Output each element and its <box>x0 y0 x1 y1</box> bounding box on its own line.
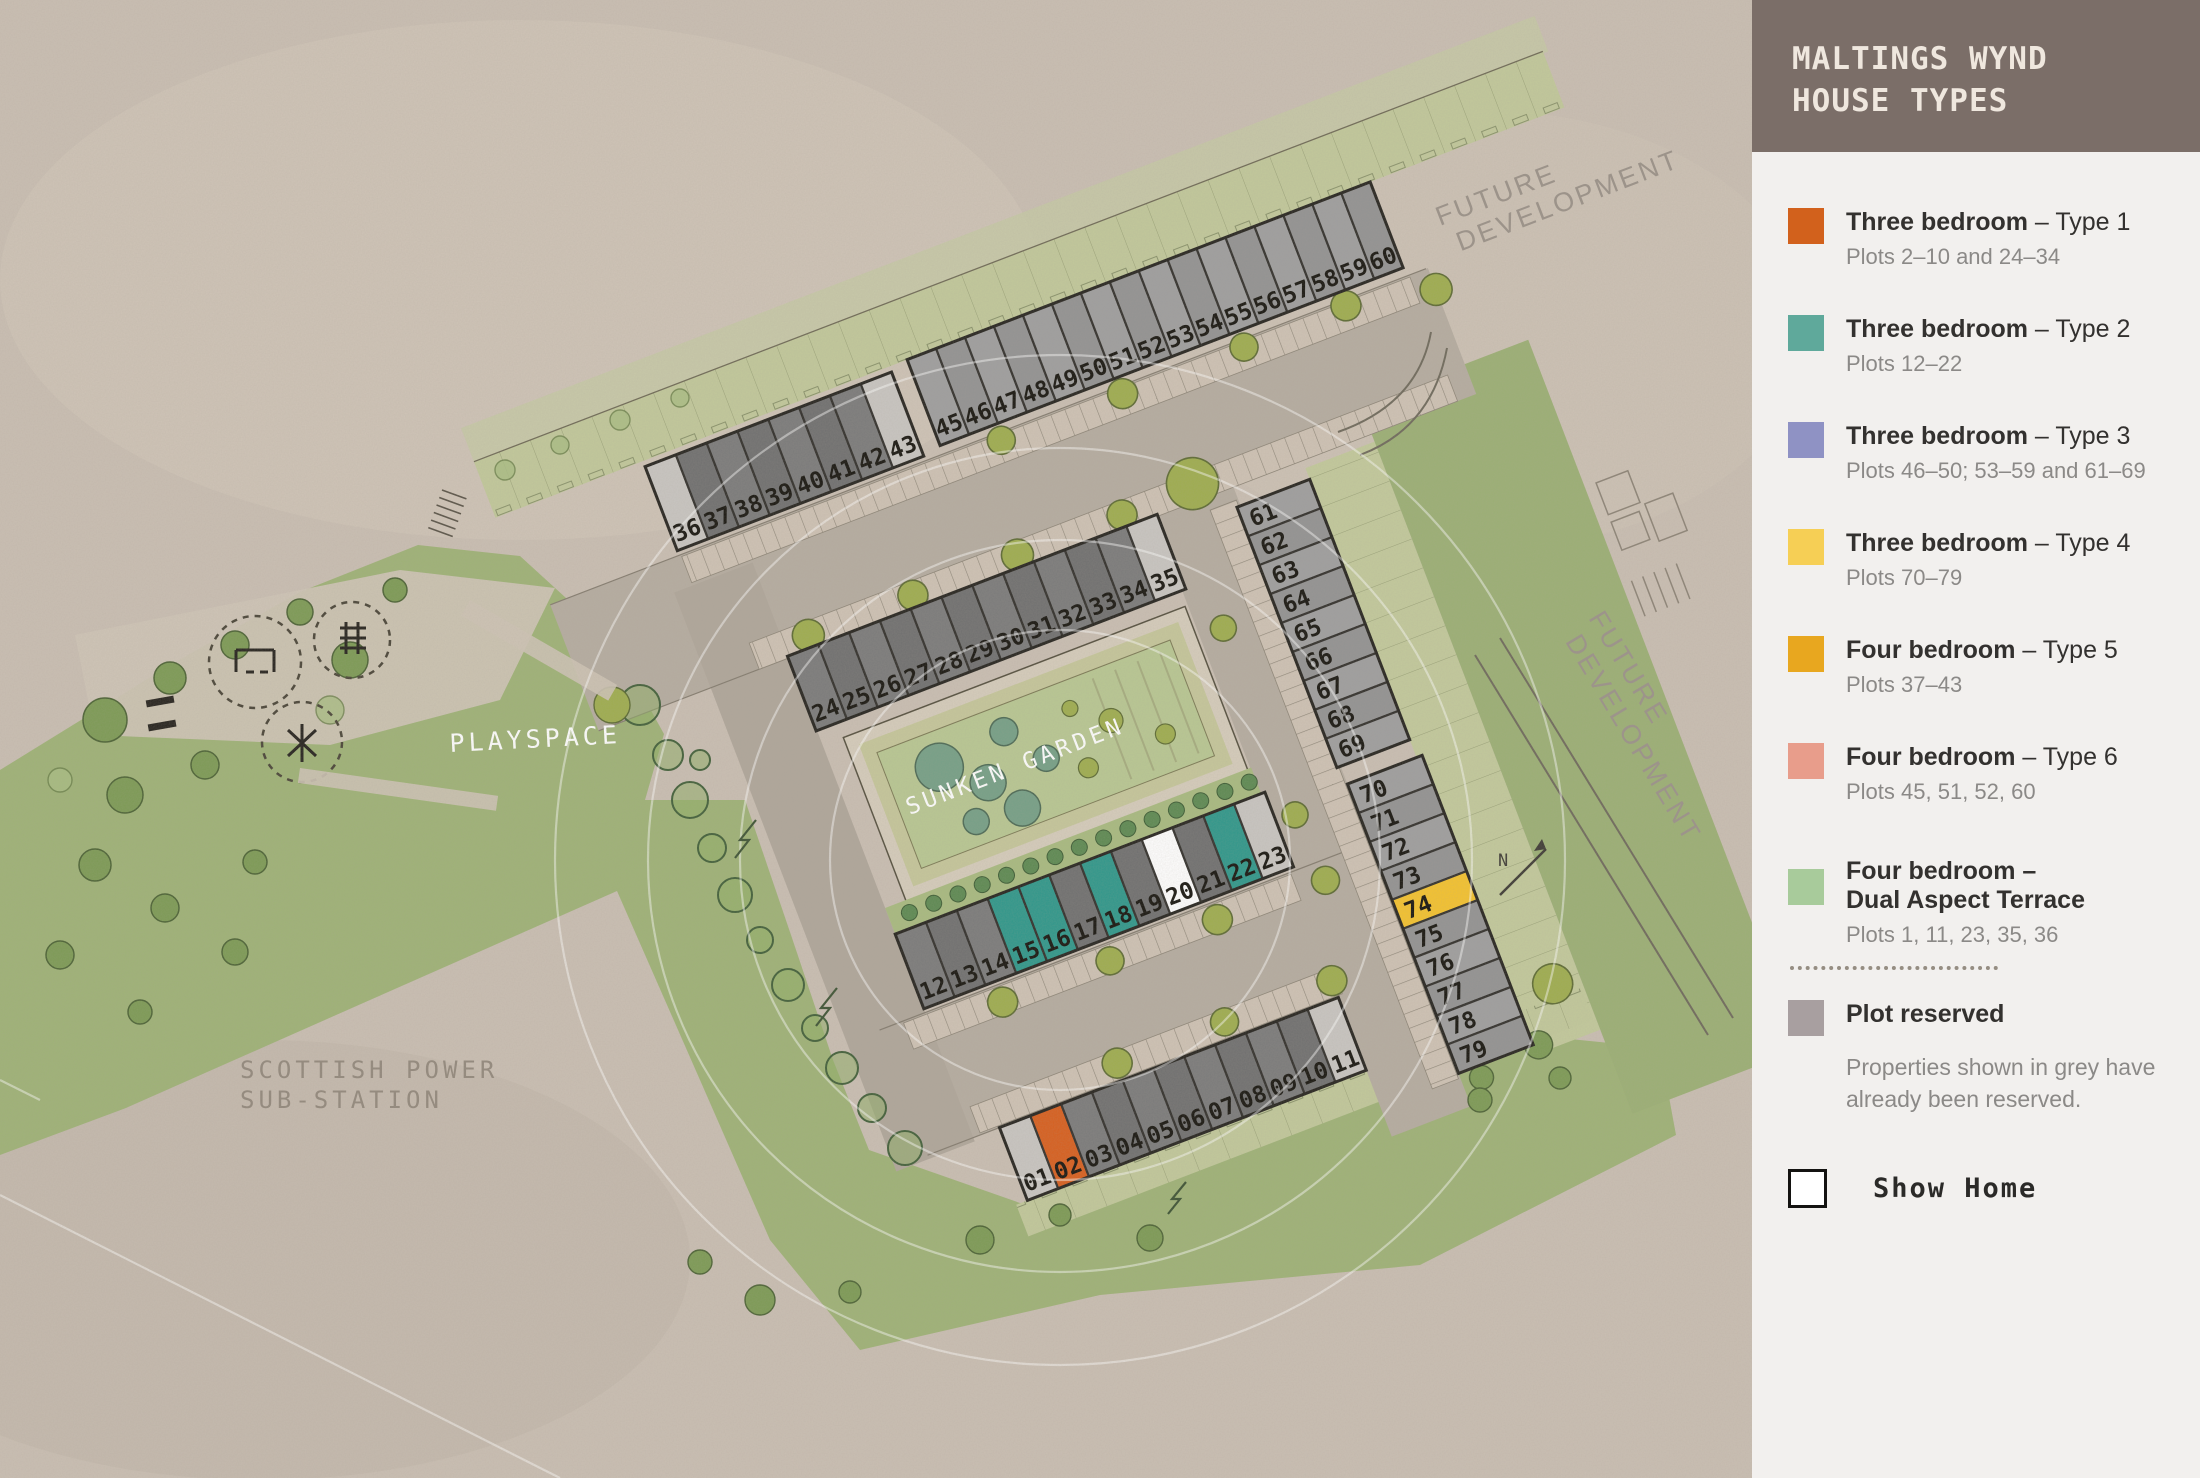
svg-text:SUB-STATION: SUB-STATION <box>240 1086 443 1114</box>
type1-plots: Plots 2–10 and 24–34 <box>1846 244 2130 270</box>
legend-item-reserved: Plot reserved Properties shown in grey h… <box>1788 1000 2172 1115</box>
type4-plots: Plots 70–79 <box>1846 565 2130 591</box>
show-home-label: Show Home <box>1873 1173 2037 1204</box>
svg-text:N: N <box>1498 851 1508 871</box>
type5-swatch <box>1788 636 1824 672</box>
type6-plots: Plots 45, 51, 52, 60 <box>1846 779 2118 805</box>
reserved-note: Properties shown in grey have already be… <box>1846 1052 2172 1115</box>
type1-label: Three bedroom <box>1846 208 2028 236</box>
dual-aspect-label-line1: Four bedroom – <box>1846 857 2036 885</box>
type5-plots: Plots 37–43 <box>1846 672 2118 698</box>
legend-title-line2: HOUSE TYPES <box>1792 80 2200 122</box>
type3-swatch <box>1788 422 1824 458</box>
type2-plots: Plots 12–22 <box>1846 351 2130 377</box>
reserved-swatch <box>1788 1000 1824 1036</box>
site-plan-page: 3637383940414243454647484950515253545556… <box>0 0 2200 1478</box>
legend-item-type1: Three bedroom – Type 1 Plots 2–10 and 24… <box>1788 208 2172 270</box>
legend-item-type2: Three bedroom – Type 2 Plots 12–22 <box>1788 315 2172 377</box>
dual-aspect-label-line2: Dual Aspect Terrace <box>1846 886 2085 914</box>
legend-panel: MALTINGS WYND HOUSE TYPES Three bedroom … <box>1752 0 2200 1478</box>
show-home-swatch <box>1788 1169 1827 1208</box>
type3-label: Three bedroom <box>1846 422 2028 450</box>
legend-item-type6: Four bedroom – Type 6 Plots 45, 51, 52, … <box>1788 743 2172 805</box>
type4-swatch <box>1788 529 1824 565</box>
legend-item-show-home: Show Home <box>1788 1169 2172 1208</box>
type4-label: Three bedroom <box>1846 529 2028 557</box>
dual-aspect-swatch <box>1788 869 1824 905</box>
legend-title-line1: MALTINGS WYND <box>1792 38 2200 80</box>
legend-divider <box>1790 966 1998 970</box>
type2-swatch <box>1788 315 1824 351</box>
type6-label: Four bedroom <box>1846 743 2015 771</box>
type5-label: Four bedroom <box>1846 636 2015 664</box>
legend-item-type5: Four bedroom – Type 5 Plots 37–43 <box>1788 636 2172 698</box>
type6-swatch <box>1788 743 1824 779</box>
site-plan-map: 3637383940414243454647484950515253545556… <box>0 0 1752 1478</box>
legend-item-type3: Three bedroom – Type 3 Plots 46–50; 53–5… <box>1788 422 2172 484</box>
dual-aspect-plots: Plots 1, 11, 23, 35, 36 <box>1846 922 2085 948</box>
type3-plots: Plots 46–50; 53–59 and 61–69 <box>1846 458 2146 484</box>
type2-label: Three bedroom <box>1846 315 2028 343</box>
legend-title: MALTINGS WYND HOUSE TYPES <box>1752 0 2200 152</box>
reserved-label: Plot reserved <box>1846 1000 2004 1028</box>
legend-item-dual-aspect: Four bedroom – Dual Aspect Terrace Plots… <box>1788 857 2172 948</box>
type1-swatch <box>1788 208 1824 244</box>
svg-text:SCOTTISH POWER: SCOTTISH POWER <box>240 1056 498 1084</box>
legend-item-type4: Three bedroom – Type 4 Plots 70–79 <box>1788 529 2172 591</box>
